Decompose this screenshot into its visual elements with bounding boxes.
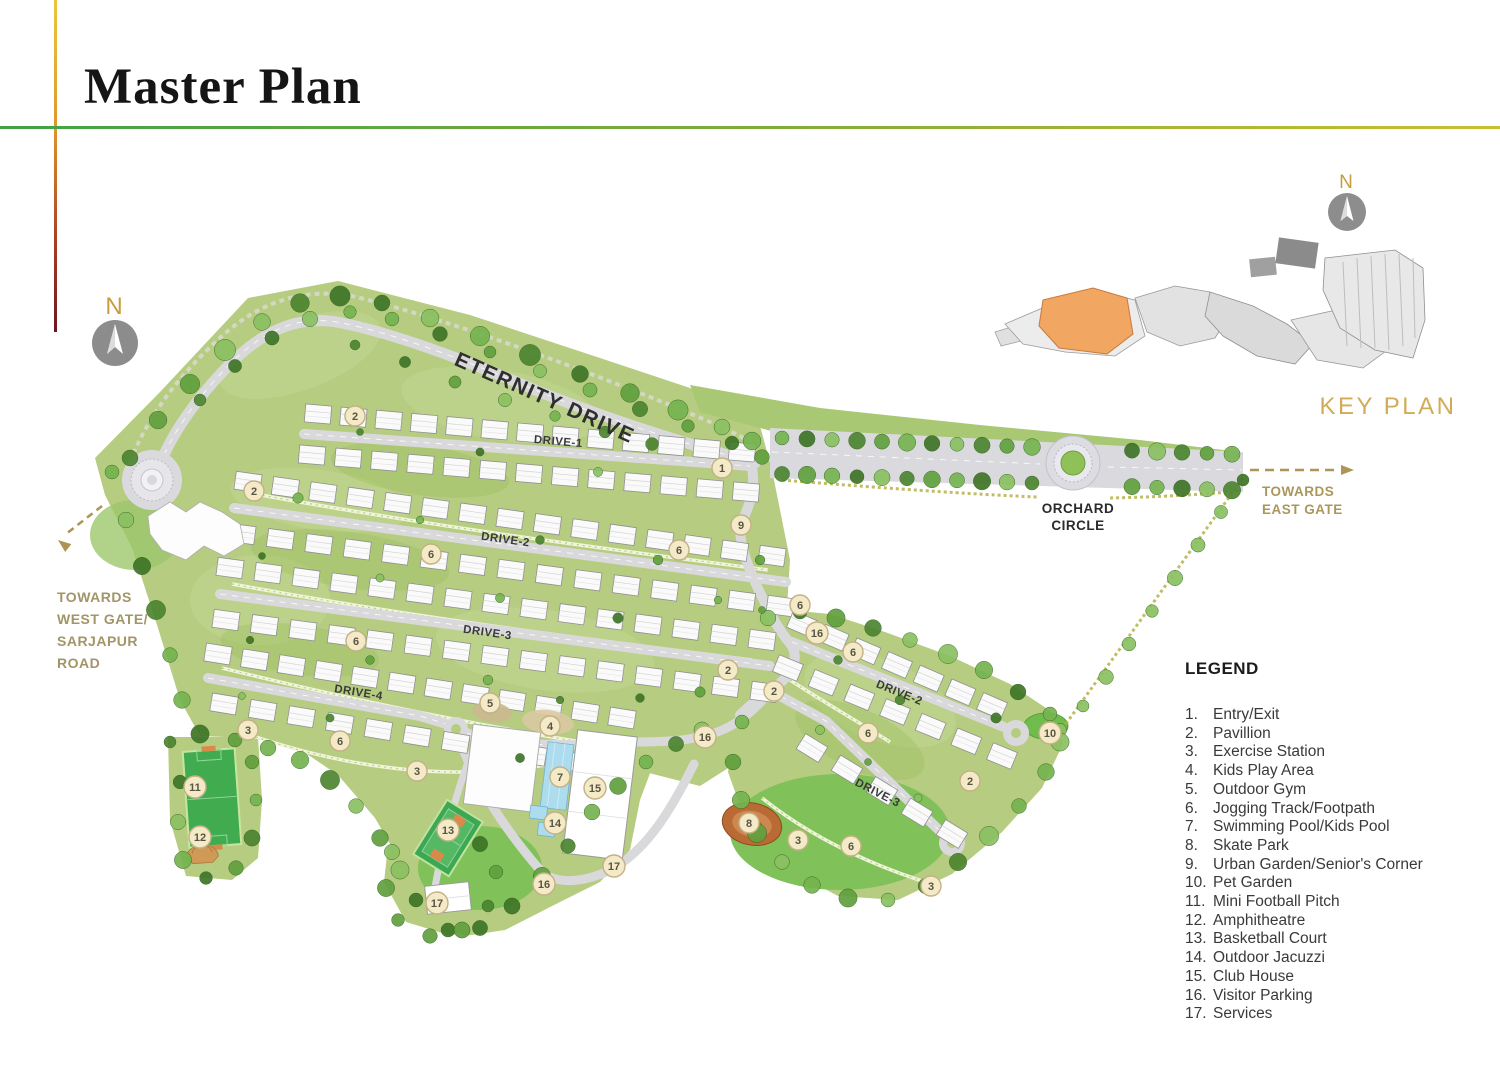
svg-text:15: 15: [589, 783, 601, 795]
legend-item-label: Exercise Station: [1213, 743, 1325, 762]
svg-text:2: 2: [725, 665, 731, 677]
legend-item: 2.Pavillion: [1185, 725, 1485, 744]
svg-text:3: 3: [414, 766, 420, 778]
legend-item-label: Swimming Pool/Kids Pool: [1213, 818, 1390, 837]
svg-text:6: 6: [850, 647, 856, 659]
legend-item: 16.Visitor Parking: [1185, 987, 1485, 1006]
legend-item-number: 8.: [1185, 837, 1213, 856]
svg-text:3: 3: [928, 881, 934, 893]
towards-east-gate-label: TOWARDS EAST GATE: [1262, 484, 1343, 517]
map-marker-3: 3: [407, 761, 427, 781]
towards-east-arrow: [1250, 465, 1354, 475]
svg-text:TOWARDS: TOWARDS: [57, 589, 132, 605]
legend-item: 4.Kids Play Area: [1185, 762, 1485, 781]
legend-item-label: Pet Garden: [1213, 874, 1292, 893]
legend-item: 15.Club House: [1185, 968, 1485, 987]
map-marker-3: 3: [921, 876, 941, 896]
compass-west-n: N: [105, 293, 122, 320]
legend-item: 12.Amphitheatre: [1185, 912, 1485, 931]
legend-item: 9.Urban Garden/Senior's Corner: [1185, 856, 1485, 875]
svg-text:5: 5: [487, 698, 493, 710]
map-marker-10: 10: [1039, 722, 1061, 744]
map-marker-15: 15: [584, 777, 606, 799]
legend-item: 3.Exercise Station: [1185, 743, 1485, 762]
key-plan-graphic: [995, 237, 1425, 368]
map-marker-2: 2: [345, 406, 365, 426]
map-marker-6: 6: [421, 544, 441, 564]
legend-item-label: Visitor Parking: [1213, 987, 1313, 1006]
map-marker-9: 9: [731, 515, 751, 535]
master-plan-page: Master Plan: [0, 0, 1500, 1071]
map-marker-16: 16: [806, 622, 828, 644]
svg-text:7: 7: [557, 772, 563, 784]
map-marker-7: 7: [550, 767, 570, 787]
svg-text:8: 8: [746, 818, 752, 830]
svg-text:TOWARDS: TOWARDS: [1262, 484, 1334, 499]
legend-item-number: 7.: [1185, 818, 1213, 837]
svg-text:13: 13: [442, 825, 454, 837]
legend-item-number: 4.: [1185, 762, 1213, 781]
svg-text:3: 3: [245, 725, 251, 737]
svg-text:11: 11: [189, 782, 201, 794]
svg-text:16: 16: [538, 879, 550, 891]
legend-item: 5.Outdoor Gym: [1185, 781, 1485, 800]
map-marker-6: 6: [843, 642, 863, 662]
map-marker-5: 5: [480, 693, 500, 713]
svg-text:6: 6: [337, 736, 343, 748]
map-marker-6: 6: [330, 731, 350, 751]
svg-text:2: 2: [967, 776, 973, 788]
map-marker-4: 4: [540, 716, 560, 736]
svg-text:2: 2: [352, 411, 358, 423]
legend-item: 17.Services: [1185, 1005, 1485, 1024]
club-house-west-building: [463, 724, 540, 812]
map-marker-17: 17: [603, 855, 625, 877]
map-marker-6: 6: [841, 836, 861, 856]
svg-text:9: 9: [738, 520, 744, 532]
svg-text:17: 17: [431, 898, 443, 910]
map-marker-2: 2: [960, 771, 980, 791]
land-areas: [90, 281, 1243, 936]
map-marker-16: 16: [694, 726, 716, 748]
svg-text:WEST GATE/: WEST GATE/: [57, 611, 148, 627]
legend-item-number: 2.: [1185, 725, 1213, 744]
legend-item-number: 14.: [1185, 949, 1213, 968]
map-marker-2: 2: [764, 681, 784, 701]
legend-item: 6.Jogging Track/Footpath: [1185, 800, 1485, 819]
legend-item-label: Services: [1213, 1005, 1272, 1024]
legend-item-label: Entry/Exit: [1213, 706, 1279, 725]
svg-text:ROAD: ROAD: [57, 655, 100, 671]
map-marker-14: 14: [544, 812, 566, 834]
svg-text:16: 16: [811, 628, 823, 640]
map-marker-3: 3: [788, 830, 808, 850]
map-marker-6: 6: [858, 723, 878, 743]
svg-text:12: 12: [194, 832, 206, 844]
svg-text:3: 3: [795, 835, 801, 847]
key-plan-label: KEY PLAN: [1320, 393, 1457, 420]
svg-text:6: 6: [848, 841, 854, 853]
map-marker-6: 6: [669, 540, 689, 560]
legend-item-number: 9.: [1185, 856, 1213, 875]
legend-item-number: 15.: [1185, 968, 1213, 987]
legend-item-label: Pavillion: [1213, 725, 1271, 744]
map-marker-17: 17: [426, 892, 448, 914]
legend-item-number: 12.: [1185, 912, 1213, 931]
svg-text:16: 16: [699, 732, 711, 744]
map-marker-3: 3: [238, 720, 258, 740]
towards-west-gate-label: TOWARDS WEST GATE/ SARJAPUR ROAD: [57, 589, 148, 671]
legend-item-label: Outdoor Gym: [1213, 781, 1306, 800]
legend-item-number: 17.: [1185, 1005, 1213, 1024]
legend-item-number: 1.: [1185, 706, 1213, 725]
legend-item-label: Jogging Track/Footpath: [1213, 800, 1375, 819]
legend-item: 7.Swimming Pool/Kids Pool: [1185, 818, 1485, 837]
svg-text:14: 14: [549, 818, 562, 830]
svg-text:ORCHARD: ORCHARD: [1042, 501, 1115, 516]
svg-text:6: 6: [865, 728, 871, 740]
legend-item: 10.Pet Garden: [1185, 874, 1485, 893]
orchard-circle-label: ORCHARD CIRCLE: [1042, 501, 1115, 533]
compass-key-plan: N: [1328, 172, 1366, 231]
compass-key-n: N: [1339, 172, 1353, 193]
legend-item: 8.Skate Park: [1185, 837, 1485, 856]
svg-text:SARJAPUR: SARJAPUR: [57, 633, 138, 649]
svg-text:4: 4: [547, 721, 554, 733]
map-marker-1: 1: [712, 458, 732, 478]
map-marker-16: 16: [533, 873, 555, 895]
legend-item: 1.Entry/Exit: [1185, 706, 1485, 725]
compass-west: N: [92, 293, 138, 366]
legend-item-label: Kids Play Area: [1213, 762, 1314, 781]
svg-text:6: 6: [428, 549, 434, 561]
legend-item-label: Basketball Court: [1213, 930, 1327, 949]
legend-item-number: 13.: [1185, 930, 1213, 949]
svg-text:17: 17: [608, 861, 620, 873]
legend-item-number: 5.: [1185, 781, 1213, 800]
svg-text:CIRCLE: CIRCLE: [1051, 518, 1104, 533]
map-marker-2: 2: [244, 481, 264, 501]
legend-item: 13.Basketball Court: [1185, 930, 1485, 949]
legend-item: 14.Outdoor Jacuzzi: [1185, 949, 1485, 968]
svg-text:1: 1: [719, 463, 725, 475]
map-marker-13: 13: [437, 819, 459, 841]
map-marker-6: 6: [346, 631, 366, 651]
legend-item-number: 16.: [1185, 987, 1213, 1006]
legend-item-label: Outdoor Jacuzzi: [1213, 949, 1325, 968]
map-marker-11: 11: [184, 776, 206, 798]
legend-title: LEGEND: [1185, 659, 1485, 679]
map-marker-6: 6: [790, 595, 810, 615]
legend-list: 1.Entry/Exit2.Pavillion3.Exercise Statio…: [1185, 706, 1485, 1024]
svg-text:6: 6: [676, 545, 682, 557]
legend-item-label: Urban Garden/Senior's Corner: [1213, 856, 1423, 875]
legend-item-number: 10.: [1185, 874, 1213, 893]
svg-text:EAST GATE: EAST GATE: [1262, 502, 1343, 517]
map-marker-2: 2: [718, 660, 738, 680]
legend-item: 11.Mini Football Pitch: [1185, 893, 1485, 912]
svg-text:10: 10: [1044, 728, 1056, 740]
legend-item-label: Club House: [1213, 968, 1294, 987]
svg-text:2: 2: [251, 486, 257, 498]
svg-text:6: 6: [353, 636, 359, 648]
legend-item-number: 11.: [1185, 893, 1213, 912]
legend: LEGEND 1.Entry/Exit2.Pavillion3.Exercise…: [1185, 659, 1485, 1024]
legend-item-label: Mini Football Pitch: [1213, 893, 1340, 912]
svg-text:6: 6: [797, 600, 803, 612]
map-marker-12: 12: [189, 826, 211, 848]
legend-item-label: Skate Park: [1213, 837, 1289, 856]
map-marker-8: 8: [739, 813, 759, 833]
legend-item-number: 6.: [1185, 800, 1213, 819]
svg-text:2: 2: [771, 686, 777, 698]
legend-item-label: Amphitheatre: [1213, 912, 1305, 931]
orchard-circle-roundabout: [1046, 436, 1100, 490]
legend-item-number: 3.: [1185, 743, 1213, 762]
